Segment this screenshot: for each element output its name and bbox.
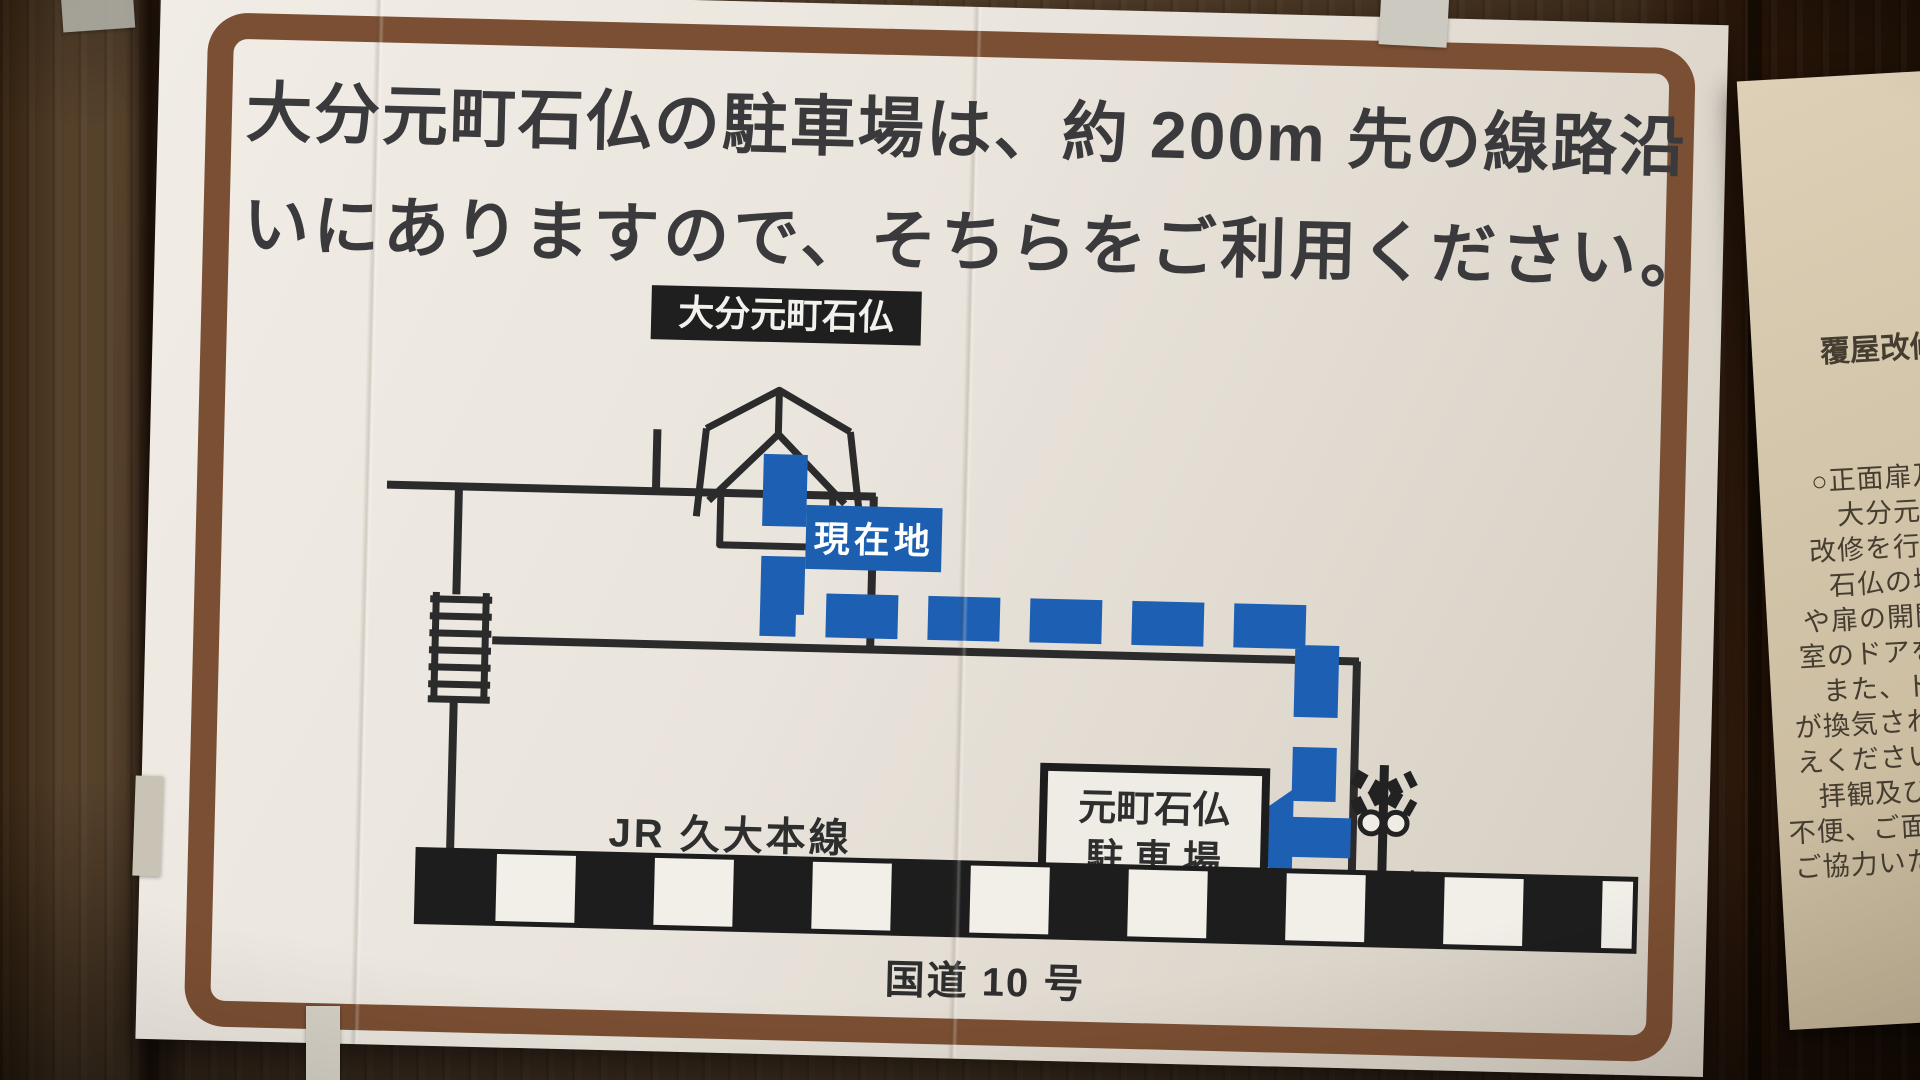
tape-top-left <box>61 0 135 32</box>
tape-top-right <box>1379 0 1450 48</box>
tape-bottom-left <box>306 1006 340 1080</box>
notice-title: 覆屋改修 <box>1819 321 1920 372</box>
tape-middle-left <box>132 776 163 877</box>
parking-guide-poster: 大分元町石仏の駐車場は、約 200m 先の線路沿 いにありますので、そちらをご利… <box>135 0 1728 1077</box>
photo-of-notice-wall: 大分元町石仏の駐車場は、約 200m 先の線路沿 いにありますので、そちらをご利… <box>0 0 1920 1080</box>
